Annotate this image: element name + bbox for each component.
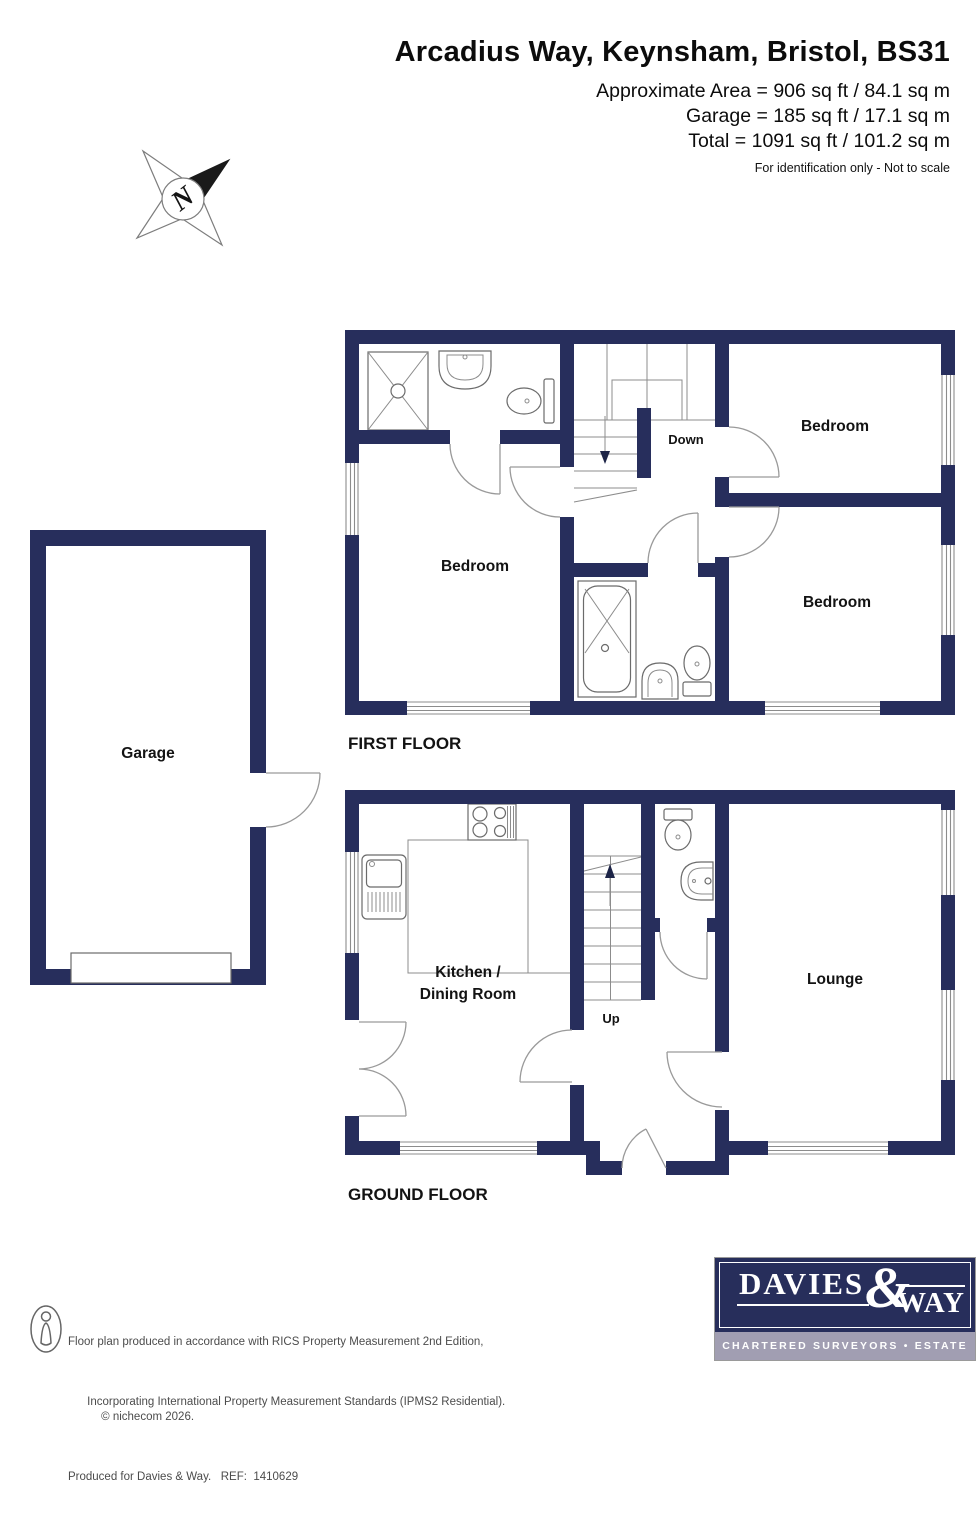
footer-line2-text: Incorporating International Property Mea… [87, 1396, 505, 1408]
first-floor-walls [345, 330, 955, 715]
basin-tap [705, 878, 711, 884]
logo-name-way: WAY [897, 1287, 965, 1320]
footer-line1: Floor plan produced in accordance with R… [68, 1335, 505, 1350]
logo-main-panel: DAVIES & WAY [715, 1258, 975, 1332]
bath-tub [584, 586, 631, 692]
room-label-lounge: Lounge [807, 971, 863, 988]
first-floor-title: FIRST FLOOR [348, 734, 461, 753]
nichecom-logo-icon [28, 1303, 66, 1355]
logo-underline [737, 1304, 869, 1306]
ground-floor-walls [345, 790, 955, 1175]
ground-floor-title: GROUND FLOOR [348, 1185, 488, 1204]
hob-burner [495, 826, 506, 837]
garage-plan: Garage [30, 530, 320, 985]
room-label-kitchen-line1: Kitchen / [435, 964, 501, 981]
stair-down-arrow [600, 451, 610, 464]
footer-disclaimer: Floor plan produced in accordance with R… [68, 1305, 505, 1515]
stair-up-arrow [605, 864, 615, 878]
hob-burner [495, 808, 506, 819]
bath-drain [602, 645, 609, 652]
toilet-cistern [664, 809, 692, 820]
toilet-cistern [544, 379, 554, 423]
compass-icon: N [137, 151, 229, 245]
kitchen-counter [408, 840, 570, 973]
toilet-bowl [684, 646, 710, 680]
room-label-garage: Garage [121, 745, 175, 762]
garage-door [71, 953, 231, 983]
logo-tagline: CHARTERED SURVEYORS • ESTATE AGENTS [715, 1332, 975, 1360]
footer-line3: Produced for Davies & Way. REF: 1410629 [68, 1470, 505, 1485]
hob-burner [473, 823, 487, 837]
room-label-bedroom-right: Bedroom [803, 594, 871, 611]
floorplan-page: Arcadius Way, Keynsham, Bristol, BS31 Ap… [0, 0, 980, 1385]
footer-line2: Incorporating International Property Mea… [68, 1380, 505, 1440]
basin-outline [642, 663, 678, 699]
toilet-cistern [683, 682, 711, 696]
hob [468, 804, 516, 840]
toilet-shower-room [507, 379, 554, 423]
staircase-up [580, 856, 641, 1000]
first-floor-plan: Bedroom Bedroom Bedroom Down FIRST FLOOR [345, 330, 955, 753]
room-label-bedroom-top-right: Bedroom [801, 418, 869, 435]
floorplan-drawing: N [0, 0, 980, 1385]
washbasin-cloakroom [681, 862, 713, 900]
toilet-bathroom [683, 646, 711, 696]
sink-bowl [367, 860, 402, 887]
toilet-cloakroom [664, 809, 692, 850]
bath [578, 581, 636, 697]
logo-name-davies: DAVIES [739, 1266, 864, 1302]
washbasin-shower-room [439, 351, 491, 389]
davies-and-way-logo: DAVIES & WAY CHARTERED SURVEYORS • ESTAT… [715, 1258, 975, 1360]
footer-copyright: © nichecom 2026. [101, 1411, 194, 1423]
room-label-bedroom-main: Bedroom [441, 558, 509, 575]
stair-label-up: Up [602, 1011, 619, 1026]
ground-floor-plan: Kitchen / Dining Room Lounge Up GROUND F… [345, 790, 955, 1204]
shower [368, 352, 428, 430]
garage-side-door [266, 773, 320, 827]
kitchen-sink [362, 855, 406, 919]
ground-floor-doors [359, 932, 722, 1168]
hob-burner [473, 807, 487, 821]
room-label-kitchen-line2: Dining Room [420, 986, 516, 1003]
shower-drain [391, 384, 405, 398]
stair-label-down: Down [668, 432, 703, 447]
washbasin-bathroom [642, 663, 678, 699]
toilet-bowl [507, 388, 541, 414]
